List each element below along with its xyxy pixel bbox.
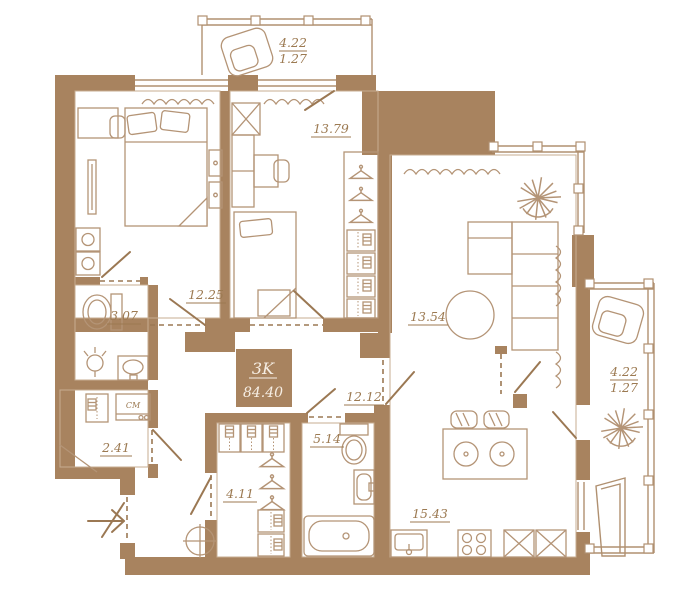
balcony-right: 4.22 1.27 [585, 279, 654, 556]
dining-table-icon [443, 411, 527, 479]
washing-machine-icon: СМ [116, 394, 150, 420]
hallway-area: 12.12 [346, 389, 382, 404]
wardrobe-area: 4.11 [225, 486, 254, 501]
bathroom-main-area: 5.14 [313, 431, 341, 446]
round-rug-icon [446, 291, 494, 339]
door-hall-living [383, 360, 414, 404]
laundry-area: 2.41 [101, 440, 130, 455]
apartment-info-box: 3K 84.40 [236, 349, 292, 407]
kitchen-area: 15.43 [412, 506, 448, 521]
window-bedroom-1 [135, 80, 228, 86]
washbasin-icon [118, 356, 148, 380]
walls [55, 75, 594, 575]
cabinet-icon [86, 394, 108, 422]
door-bathroom-main [307, 389, 344, 417]
plant-icon [517, 177, 561, 220]
stove-icon [458, 530, 491, 557]
entry-arrow-icon [88, 510, 124, 532]
bathtub-icon [304, 516, 374, 556]
balcony-top-area-reduced: 1.27 [279, 51, 307, 66]
armchair-icon [219, 26, 275, 78]
exterior-element [596, 478, 625, 556]
bedroom-1: 12.25 [76, 100, 226, 304]
closet-icon [344, 152, 378, 318]
balcony-right-area: 4.22 [609, 364, 638, 379]
desk-icon [254, 155, 289, 187]
bathroom-small-area: 3.07 [110, 308, 138, 323]
corner-window-living [489, 142, 585, 235]
bathroom-main: 5.14 [304, 424, 374, 556]
washing-machine-label: СМ [126, 401, 141, 410]
door-kitchen [501, 354, 540, 394]
lamp-icon [84, 347, 106, 377]
armchair-icon [590, 294, 645, 345]
bedroom-2: 13.79 [232, 100, 378, 319]
window-bedroom-2 [258, 80, 336, 86]
apartment-total-area: 84.40 [243, 385, 283, 401]
dresser-icon [76, 228, 100, 275]
bedroom-1-area: 12.25 [188, 287, 224, 302]
double-bed-icon [125, 108, 207, 226]
door-wardrobe [191, 475, 211, 518]
desk-icon [78, 108, 125, 138]
door-balcony-right [553, 412, 576, 438]
balcony-right-area-reduced: 1.27 [610, 380, 638, 395]
curtain-wave-icon [142, 100, 214, 105]
kitchen: 15.43 [391, 411, 566, 557]
door-bathroom-small [100, 252, 140, 281]
curtain-wave-icon [404, 170, 500, 175]
floor-plan-page: 4.22 1.27 12.25 [0, 0, 699, 600]
kitchen-sink-icon [391, 530, 427, 557]
wardrobe-room: 4.11 [219, 424, 284, 556]
mirror-icon [88, 160, 96, 214]
single-bed-icon [234, 212, 296, 318]
sofa-icon [468, 222, 558, 350]
bedroom-2-area: 13.79 [313, 121, 349, 136]
door-laundry [152, 430, 181, 462]
radiator-icon [556, 352, 561, 388]
balcony-top-area: 4.22 [278, 35, 307, 50]
washbasin-icon [354, 470, 374, 504]
kitchen-cabinet-icon [504, 530, 566, 557]
toilet-icon [340, 424, 368, 464]
living-area: 13.54 [410, 309, 446, 324]
bathroom-small: 3.07 [83, 294, 148, 380]
window-kitchen [578, 482, 584, 530]
floor-plan: 4.22 1.27 12.25 [0, 0, 699, 600]
apartment-type-label: 3K [252, 359, 275, 378]
balcony-top: 4.22 1.27 [198, 16, 372, 78]
living-room: 13.54 [404, 170, 561, 389]
plant-icon [601, 408, 643, 449]
